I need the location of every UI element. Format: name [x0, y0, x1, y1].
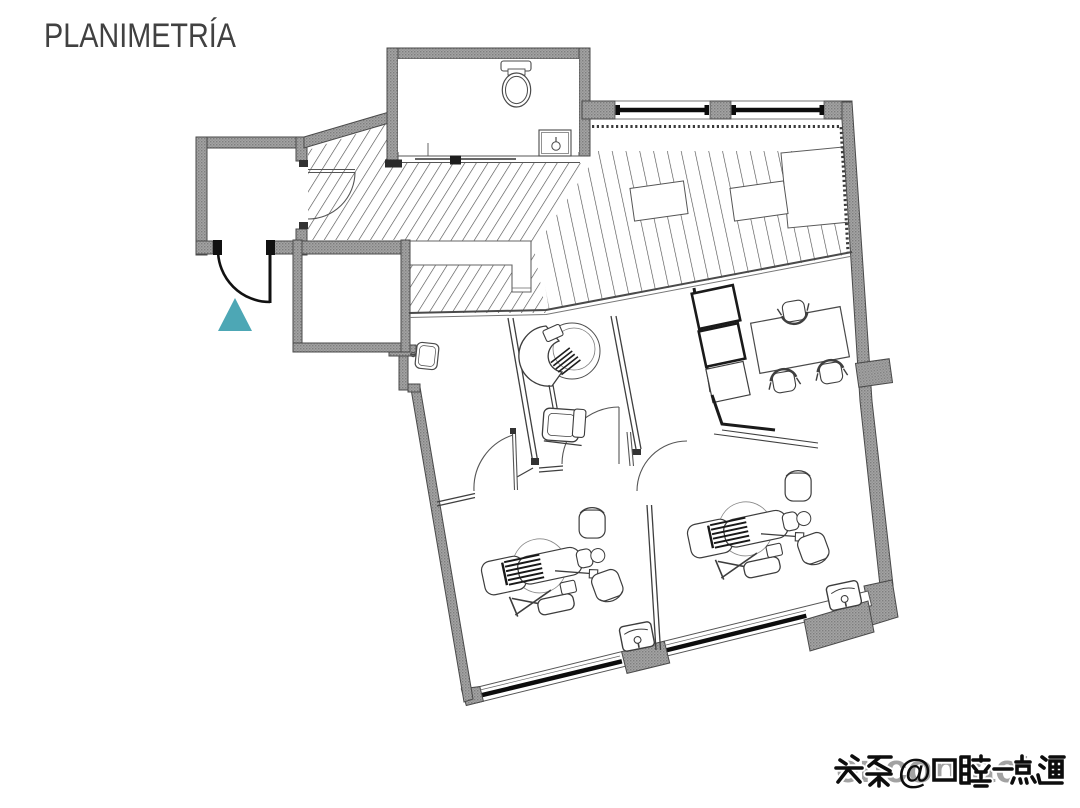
svg-text:@: @	[898, 753, 931, 791]
svg-text:PLANIMETRÍA: PLANIMETRÍA	[44, 17, 236, 55]
